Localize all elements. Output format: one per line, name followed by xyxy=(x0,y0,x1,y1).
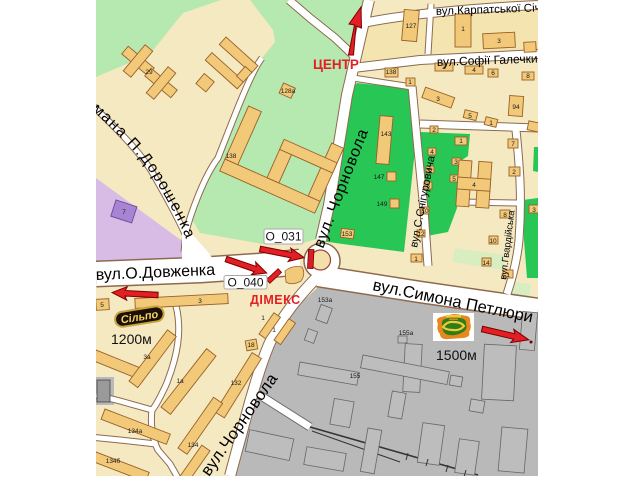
svg-text:4: 4 xyxy=(430,149,434,156)
svg-text:3: 3 xyxy=(198,298,202,305)
svg-text:14: 14 xyxy=(482,260,490,267)
svg-text:О_040: О_040 xyxy=(227,276,263,290)
svg-text:ЦЕНТР: ЦЕНТР xyxy=(313,57,359,72)
svg-text:134а: 134а xyxy=(128,428,143,435)
svg-text:1а: 1а xyxy=(176,378,184,385)
svg-text:1: 1 xyxy=(261,315,265,322)
svg-text:3а: 3а xyxy=(143,354,151,361)
svg-text:155а: 155а xyxy=(399,330,414,337)
svg-text:4: 4 xyxy=(472,67,476,74)
svg-text:1: 1 xyxy=(414,256,418,263)
svg-text:138: 138 xyxy=(386,69,397,76)
svg-text:132: 132 xyxy=(231,380,242,387)
svg-text:8: 8 xyxy=(526,73,530,80)
svg-text:3: 3 xyxy=(454,159,458,166)
svg-text:153а: 153а xyxy=(318,297,333,304)
svg-text:1: 1 xyxy=(272,327,276,334)
svg-text:153: 153 xyxy=(342,231,353,238)
svg-text:5: 5 xyxy=(452,176,456,183)
svg-text:3: 3 xyxy=(497,38,501,45)
svg-text:3: 3 xyxy=(436,96,440,103)
svg-text:138: 138 xyxy=(226,153,237,160)
svg-text:1: 1 xyxy=(461,26,465,33)
svg-text:18: 18 xyxy=(247,342,255,349)
svg-text:155: 155 xyxy=(350,373,361,380)
svg-text:94: 94 xyxy=(512,104,520,111)
svg-text:1: 1 xyxy=(408,79,412,86)
svg-text:7: 7 xyxy=(122,209,126,216)
svg-text:29: 29 xyxy=(145,69,153,76)
svg-text:3: 3 xyxy=(532,207,536,214)
svg-text:1: 1 xyxy=(459,138,463,145)
svg-text:ДІМЕКС: ДІМЕКС xyxy=(250,293,301,307)
svg-text:7: 7 xyxy=(511,141,515,148)
svg-text:149: 149 xyxy=(377,201,388,208)
svg-text:2: 2 xyxy=(512,169,516,176)
svg-text:143: 143 xyxy=(381,131,392,138)
svg-text:6: 6 xyxy=(491,70,495,77)
svg-text:128а: 128а xyxy=(281,88,296,95)
svg-text:127: 127 xyxy=(406,23,417,30)
svg-text:4: 4 xyxy=(472,182,476,189)
svg-text:2: 2 xyxy=(432,127,436,134)
svg-text:1200м: 1200м xyxy=(111,331,152,347)
svg-text:134б: 134б xyxy=(106,457,121,465)
svg-text:О_031: О_031 xyxy=(265,230,301,244)
svg-text:147: 147 xyxy=(374,174,385,181)
svg-text:10: 10 xyxy=(489,238,497,245)
svg-text:134: 134 xyxy=(188,442,199,449)
svg-text:5: 5 xyxy=(468,113,472,120)
svg-text:5: 5 xyxy=(100,302,104,309)
svg-text:1: 1 xyxy=(489,120,493,127)
svg-text:1500м: 1500м xyxy=(436,347,477,363)
